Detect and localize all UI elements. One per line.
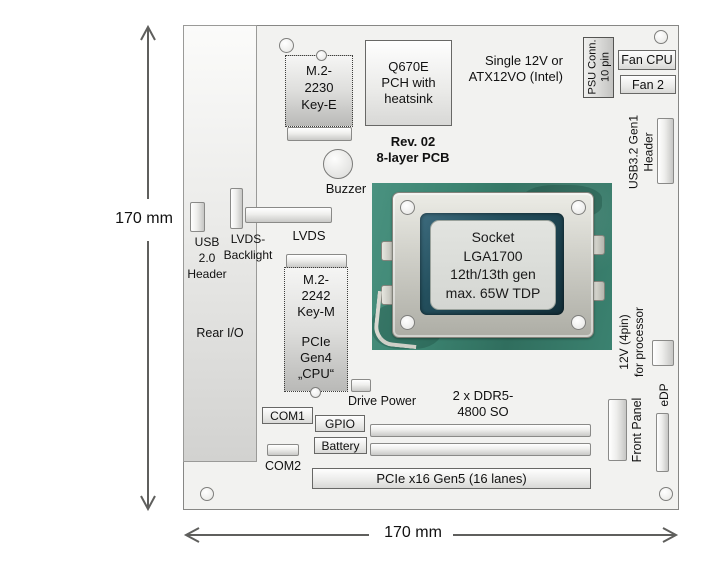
lvds-backlight-line: LVDS- <box>214 231 282 247</box>
com2-label: COM2 <box>258 459 308 474</box>
rev-line: Rev. 02 <box>363 134 463 150</box>
ddr-line: 4800 SO <box>433 404 533 420</box>
com2-connector <box>267 444 299 456</box>
vertical-dimension-arrow <box>136 23 162 513</box>
m2-2230-line: Key-E <box>286 96 352 113</box>
m2-2230-line: 2230 <box>286 79 352 96</box>
usb2-header-connector <box>190 202 205 232</box>
psu-note-line: Single 12V or <box>443 53 563 69</box>
lvds-label: LVDS <box>282 228 336 244</box>
pch-label: Q670E PCH with heatsink <box>381 59 435 107</box>
revision-note: Rev. 02 8-layer PCB <box>363 134 463 165</box>
psu-note-line: ATX12VO (Intel) <box>443 69 563 85</box>
psu-conn-line: PSU Conn. <box>587 39 600 94</box>
usb32-header-connector <box>657 118 674 184</box>
battery-holder: Battery <box>314 437 367 454</box>
cpu-12v-line: for processor <box>632 307 647 377</box>
pch-line: PCH with <box>381 75 435 91</box>
m2-2242-line: 2242 <box>285 288 347 304</box>
edp-connector <box>656 413 669 472</box>
fan-2-label: Fan 2 <box>632 78 664 92</box>
cpu-socket-photo: Socket LGA1700 12th/13th gen max. 65W TD… <box>372 183 612 350</box>
usb32-line: USB3.2 Gen1 <box>627 115 642 189</box>
usb32-header-label: USB3.2 Gen1 Header <box>627 115 656 189</box>
drive-power-connector <box>351 379 371 392</box>
battery-label: Battery <box>321 439 359 453</box>
rev-line: 8-layer PCB <box>363 150 463 166</box>
front-panel-label: Front Panel <box>630 398 644 463</box>
ddr-slot-1 <box>370 424 591 437</box>
ddr-line: 2 x DDR5- <box>433 388 533 404</box>
mounting-hole-top-right <box>654 30 668 44</box>
m2-2242-socket-connector <box>286 254 347 268</box>
fan-2-connector: Fan 2 <box>620 75 676 94</box>
front-panel-connector <box>608 399 627 461</box>
m2-2242-line: Gen4 <box>285 350 347 366</box>
socket-screw <box>571 200 586 215</box>
left-dimension-label: 170 mm <box>106 209 182 228</box>
cpu-12v-line: 12V (4pin) <box>617 307 632 377</box>
m2-2242-module: M.2- 2242 Key-M PCIe Gen4 „CPU“ <box>284 267 348 392</box>
lvds-connector <box>245 207 332 223</box>
cpu-12v-label: 12V (4pin) for processor <box>617 307 647 377</box>
cpu-12v-connector <box>652 340 674 366</box>
m2-2242-line: M.2- <box>285 272 347 288</box>
m2-2242-spacer <box>285 320 347 334</box>
socket-screw <box>400 315 415 330</box>
com1-label: COM1 <box>270 409 305 423</box>
pch-line: Q670E <box>381 59 435 75</box>
fan-cpu-label: Fan CPU <box>621 53 672 67</box>
m2-2230-module: M.2- 2230 Key-E <box>285 55 353 127</box>
socket-screw <box>571 315 586 330</box>
mounting-hole-bottom-right <box>659 487 673 501</box>
gpio-connector: GPIO <box>315 415 365 432</box>
usb2-line: Header <box>181 266 233 282</box>
m2-2242-line: PCIe <box>285 334 347 350</box>
pcie-x16-label: PCIe x16 Gen5 (16 lanes) <box>376 471 526 486</box>
usb32-line: Header <box>641 115 656 189</box>
ddr-slot-2 <box>370 443 591 456</box>
socket-line: 12th/13th gen <box>450 265 536 284</box>
mounting-hole-top-left <box>279 38 294 53</box>
m2-2242-line: „CPU“ <box>285 366 347 382</box>
socket-line: LGA1700 <box>463 247 522 266</box>
m2-2230-screw <box>316 50 327 61</box>
fan-cpu-connector: Fan CPU <box>618 50 676 70</box>
lvds-backlight-line: Backlight <box>214 247 282 263</box>
com1-connector: COM1 <box>262 407 313 424</box>
edp-label: eDP <box>657 383 671 406</box>
rear-io-label: Rear I/O <box>190 326 250 341</box>
socket-line: Socket <box>472 228 515 247</box>
cpu-socket-label-plate: Socket LGA1700 12th/13th gen max. 65W TD… <box>430 220 556 310</box>
buzzer-label: Buzzer <box>318 181 374 197</box>
m2-2230-socket-connector <box>287 127 352 141</box>
psu-connector-label: PSU Conn. 10 pin <box>587 39 612 94</box>
socket-screw <box>400 200 415 215</box>
ddr-label: 2 x DDR5- 4800 SO <box>433 388 533 419</box>
lvds-backlight-connector <box>230 188 243 229</box>
motherboard-diagram: 170 mm 170 mm Rear I/O USB 2.0 Header LV… <box>0 0 728 566</box>
mounting-hole-bottom-left <box>200 487 214 501</box>
psu-conn-line: 10 pin <box>599 39 612 94</box>
m2-2242-line: Key-M <box>285 304 347 320</box>
bottom-dimension-label: 170 mm <box>373 523 453 542</box>
m2-2242-screw <box>310 387 321 398</box>
buzzer-component <box>323 149 353 179</box>
drive-power-label: Drive Power <box>341 394 423 409</box>
m2-2230-line: M.2- <box>286 62 352 79</box>
socket-line: max. 65W TDP <box>446 284 541 303</box>
gpio-label: GPIO <box>325 417 355 431</box>
pcie-x16-slot: PCIe x16 Gen5 (16 lanes) <box>312 468 591 489</box>
psu-note: Single 12V or ATX12VO (Intel) <box>443 53 563 84</box>
pch-block: Q670E PCH with heatsink <box>365 40 452 126</box>
pch-line: heatsink <box>381 91 435 107</box>
lvds-backlight-label: LVDS- Backlight <box>214 231 282 263</box>
